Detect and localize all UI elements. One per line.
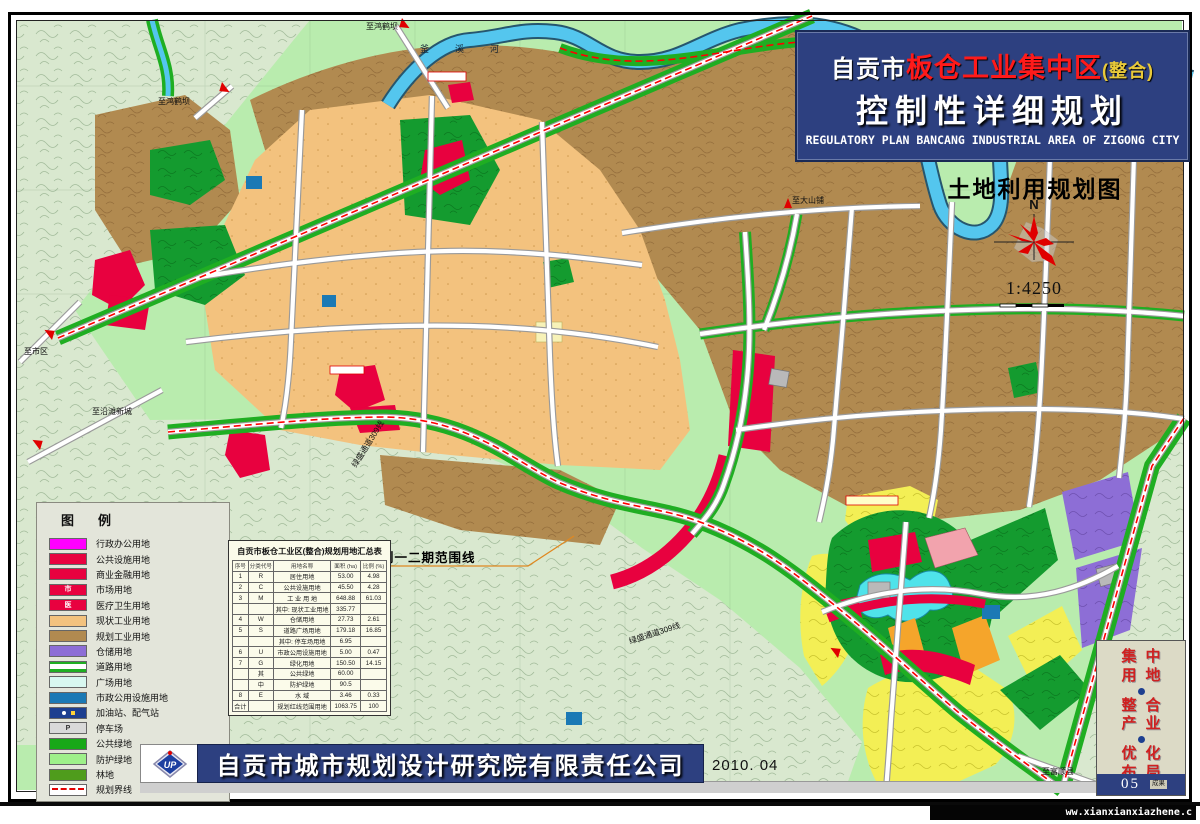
col-header-code: 分类代号 xyxy=(248,561,273,572)
company-logo-box: UP xyxy=(140,744,199,783)
legend-swatch-public-facility xyxy=(49,553,87,565)
legend-item: 商业金融用地 xyxy=(49,567,229,582)
slogan-line: 整合 xyxy=(1121,697,1169,716)
table-header-row: 序号 分类代号 用地名称 面积 (ha) 比例 (%) xyxy=(233,561,387,572)
plan-sheet: 至鸿鹤坝 至鸿鹤坝 至大山铺 至市区 至沿滩新城 至富顺县 绿盛通道309线 绿… xyxy=(0,0,1200,824)
table-row: 8E水 域3.460.33 xyxy=(233,690,387,701)
plan-title-line1: 自贡市板仓工业集中区(整合) xyxy=(831,46,1154,85)
table-row: 其中: 现状工业用地335.77 xyxy=(233,604,387,615)
table-row: 1R居住用地53.004.98 xyxy=(233,571,387,582)
legend-title: 图例 xyxy=(61,510,229,529)
legend-item: 广场用地 xyxy=(49,675,229,690)
plan-title-line2: 控制性详细规划 xyxy=(856,86,1129,132)
table-row: 5S道路广场用地179.1816.85 xyxy=(233,625,387,636)
plan-date: 2010. 04 xyxy=(712,757,778,774)
legend-swatch-planned-industrial xyxy=(49,630,87,642)
legend-label: 规划界线 xyxy=(96,783,132,796)
up-logo-icon: UP xyxy=(150,749,190,779)
legend-swatch-public-green xyxy=(49,738,87,750)
plan-title-english: REGULATORY PLAN BANCANG INDUSTRIAL AREA … xyxy=(806,133,1180,147)
legend-label: 商业金融用地 xyxy=(96,568,150,581)
col-header-no: 序号 xyxy=(233,561,249,572)
slogan-line: 产业 xyxy=(1121,715,1169,734)
title-suffix: (整合) xyxy=(1102,61,1154,81)
scale-bar xyxy=(996,300,1072,312)
legend-label: 仓储用地 xyxy=(96,645,132,658)
legend-label: 公共绿地 xyxy=(96,737,132,750)
legend-swatch-parking: P xyxy=(49,722,87,734)
compass-block: N 1:4250 xyxy=(978,198,1090,317)
legend-label: 防护绿地 xyxy=(96,753,132,766)
road-label-dashanpu: 至大山铺 xyxy=(792,195,824,205)
legend-swatch-admin-office xyxy=(49,538,87,550)
table-row: 3M工 业 用 地648.8861.03 xyxy=(233,593,387,604)
road-label-honghebai-2: 至鸿鹤坝 xyxy=(158,96,190,106)
road-label-city: 至市区 xyxy=(24,346,48,356)
table-row: 中防护绿地90.5 xyxy=(233,679,387,690)
road-label-honghebai-1: 至鸿鹤坝 xyxy=(366,21,398,31)
side-panel: 集中 用地 整合 产业 优化 布局 05 成果 xyxy=(1096,640,1186,796)
road-label-fushun: 至富顺县 xyxy=(1042,766,1074,776)
table-row: 7G绿化用地150.5014.15 xyxy=(233,658,387,669)
summary-table-title: 自贡市板仓工业区(整合)规划用地汇总表 xyxy=(232,545,387,557)
market-symbol: 市 xyxy=(65,586,72,593)
legend-label: 加油站、配气站 xyxy=(96,706,159,719)
legend-swatch-municipal-utility xyxy=(49,692,87,704)
table-row: 其中: 停车场用地6.95 xyxy=(233,636,387,647)
legend-swatch-planning-boundary xyxy=(49,784,87,796)
slogan-block: 集中 用地 整合 产业 优化 布局 xyxy=(1097,641,1185,783)
title-city: 自贡市 xyxy=(831,56,906,83)
legend-item: 医医疗卫生用地 xyxy=(49,598,229,613)
legend-swatch-plaza xyxy=(49,676,87,688)
legend-item: 加油站、配气站 xyxy=(49,705,229,720)
legend-label: 广场用地 xyxy=(96,676,132,689)
legend-swatch-existing-industrial xyxy=(49,615,87,627)
legend-label: 道路用地 xyxy=(96,660,132,673)
slogan-dot-icon xyxy=(1138,688,1145,695)
north-label: N xyxy=(978,198,1090,211)
table-row: 4W仓储用地27.732.61 xyxy=(233,614,387,625)
legend-swatch-road xyxy=(49,661,87,673)
legend-label: 行政办公用地 xyxy=(96,537,150,550)
company-name-bar: 自贡市城市规划设计研究院有限责任公司 xyxy=(197,744,704,783)
legend-swatch-market: 市 xyxy=(49,584,87,596)
table-row: 2C公共设施用地45.504.28 xyxy=(233,582,387,593)
slogan-dot-icon xyxy=(1138,736,1145,743)
legend-label: 公共设施用地 xyxy=(96,553,150,566)
sheet-number: 05 xyxy=(1121,776,1140,793)
legend-swatch-gas-station xyxy=(49,707,87,719)
table-row: 6U市政公用设施用地5.000.47 xyxy=(233,647,387,658)
title-block: 自贡市板仓工业集中区(整合) 控制性详细规划 REGULATORY PLAN B… xyxy=(795,30,1190,162)
col-header-pct: 比例 (%) xyxy=(361,561,387,572)
road-label-yantan: 至沿滩新城 xyxy=(92,406,132,416)
sheet-number-bar: 05 成果 xyxy=(1097,774,1185,795)
legend-item: 仓储用地 xyxy=(49,644,229,659)
legend-label: 现状工业用地 xyxy=(96,614,150,627)
legend-item: 规划工业用地 xyxy=(49,628,229,643)
legend-item: 市市场用地 xyxy=(49,582,229,597)
title-area-name: 板仓工业集中区 xyxy=(906,53,1102,83)
legend-item: 现状工业用地 xyxy=(49,613,229,628)
slogan-line: 优化 xyxy=(1121,745,1169,764)
utility-parcel xyxy=(982,605,1000,619)
legend-label: 市场用地 xyxy=(96,583,132,596)
compass-rose-icon xyxy=(988,211,1080,273)
land-use-summary-table: 自贡市板仓工业区(整合)规划用地汇总表 序号 分类代号 用地名称 面积 (ha)… xyxy=(228,540,391,716)
table-row: 其公共绿地60.00 xyxy=(233,668,387,679)
legend-label: 林地 xyxy=(96,768,114,781)
legend-label: 市政公用设施用地 xyxy=(96,691,168,704)
svg-text:UP: UP xyxy=(163,760,176,770)
medical-symbol: 医 xyxy=(65,602,72,609)
col-header-name: 用地名称 xyxy=(274,561,331,572)
table-row: 合计规划红线范围用地1063.75100 xyxy=(233,701,387,712)
scale-text: 1:4250 xyxy=(978,278,1090,299)
legend-label: 停车场 xyxy=(96,722,123,735)
legend-swatch-protective-green xyxy=(49,753,87,765)
slogan-line: 集中 xyxy=(1121,648,1169,667)
legend-item: 市政公用设施用地 xyxy=(49,690,229,705)
river-label: 釜溪河 xyxy=(420,43,525,54)
legend-item: 公共设施用地 xyxy=(49,551,229,566)
legend-swatch-medical: 医 xyxy=(49,599,87,611)
legend-item: P停车场 xyxy=(49,721,229,736)
parking-symbol: P xyxy=(66,725,71,732)
legend-item: 道路用地 xyxy=(49,659,229,674)
legend-label: 医疗卫生用地 xyxy=(96,599,150,612)
legend-label: 规划工业用地 xyxy=(96,630,150,643)
legend-swatch-warehouse xyxy=(49,645,87,657)
slogan-line: 用地 xyxy=(1121,667,1169,686)
col-header-area: 面积 (ha) xyxy=(331,561,361,572)
sheet-type-tag: 成果 xyxy=(1150,780,1167,789)
legend-swatch-commercial xyxy=(49,568,87,580)
legend-swatch-forest xyxy=(49,769,87,781)
legend-item: 行政办公用地 xyxy=(49,536,229,551)
watermark: ww.xianxianxiazhene.c xyxy=(930,805,1196,820)
